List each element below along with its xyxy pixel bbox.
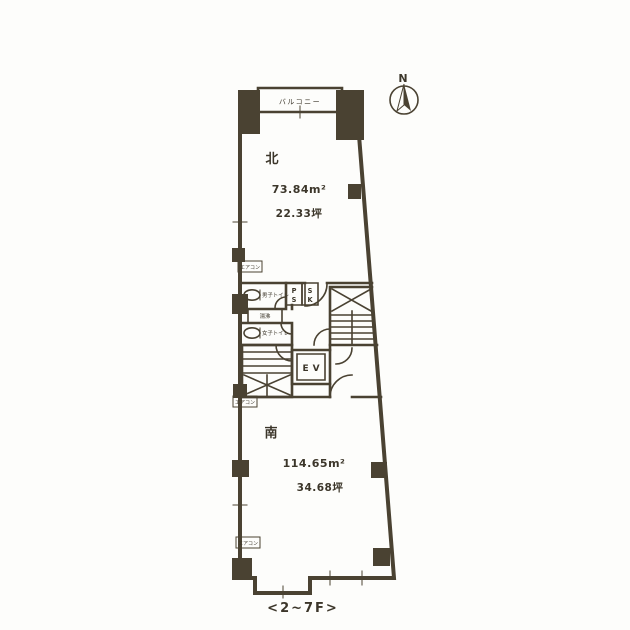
- column: [232, 558, 252, 580]
- aircon-label: エアコン: [235, 400, 255, 406]
- north-room: 北 73.84m² 22.33坪: [265, 152, 326, 220]
- water-boiler-label: 湯沸: [260, 312, 271, 320]
- south-room-name: 南: [264, 425, 277, 441]
- floor-range-caption: <2~7F>: [267, 601, 339, 616]
- column: [373, 548, 390, 566]
- column: [348, 184, 361, 199]
- sk-label-bottom: K: [307, 296, 313, 304]
- structural-columns: [232, 90, 390, 580]
- elevator-label: EV: [302, 364, 323, 374]
- staircase-lower: [242, 345, 292, 397]
- mens-toilet-label: 男子トイレ: [262, 292, 289, 299]
- womens-toilet-label: 女子トイレ: [262, 329, 289, 337]
- stair-treads: [330, 311, 375, 345]
- stair-treads: [242, 352, 292, 373]
- ps-label-bottom: S: [292, 296, 297, 304]
- north-room-area-tsubo: 22.33坪: [276, 207, 323, 220]
- column: [232, 294, 248, 314]
- stair-cross: [332, 289, 371, 311]
- aircon-label: エアコン: [238, 541, 258, 547]
- column: [336, 90, 364, 140]
- balcony: バルコニー: [258, 88, 342, 118]
- balcony-label: バルコニー: [279, 98, 321, 106]
- column: [232, 248, 245, 262]
- column: [232, 460, 249, 477]
- floor-plan-drawing: バルコニー: [0, 0, 630, 630]
- elevator: EV: [292, 350, 330, 384]
- stair-cross: [244, 375, 290, 397]
- south-room-door-arc: [330, 375, 352, 397]
- ps-label-top: P: [292, 287, 297, 295]
- compass-north-label: N: [398, 72, 407, 85]
- stair-door-arc: [314, 329, 330, 345]
- column: [238, 90, 260, 134]
- corridor-door-arc: [336, 348, 352, 364]
- north-room-area-m2: 73.84m²: [272, 183, 327, 196]
- south-room-area-m2: 114.65m²: [283, 457, 346, 470]
- floor-plan-page: バルコニー: [0, 0, 630, 630]
- north-room-name: 北: [265, 152, 278, 167]
- sk-label-top: S: [308, 287, 313, 295]
- south-room: 南 114.65m² 34.68坪: [264, 425, 345, 494]
- toilet-icon: [244, 328, 260, 338]
- aircon-label: エアコン: [240, 265, 260, 271]
- south-room-area-tsubo: 34.68坪: [297, 481, 344, 494]
- column: [371, 462, 387, 478]
- compass: N: [390, 72, 418, 114]
